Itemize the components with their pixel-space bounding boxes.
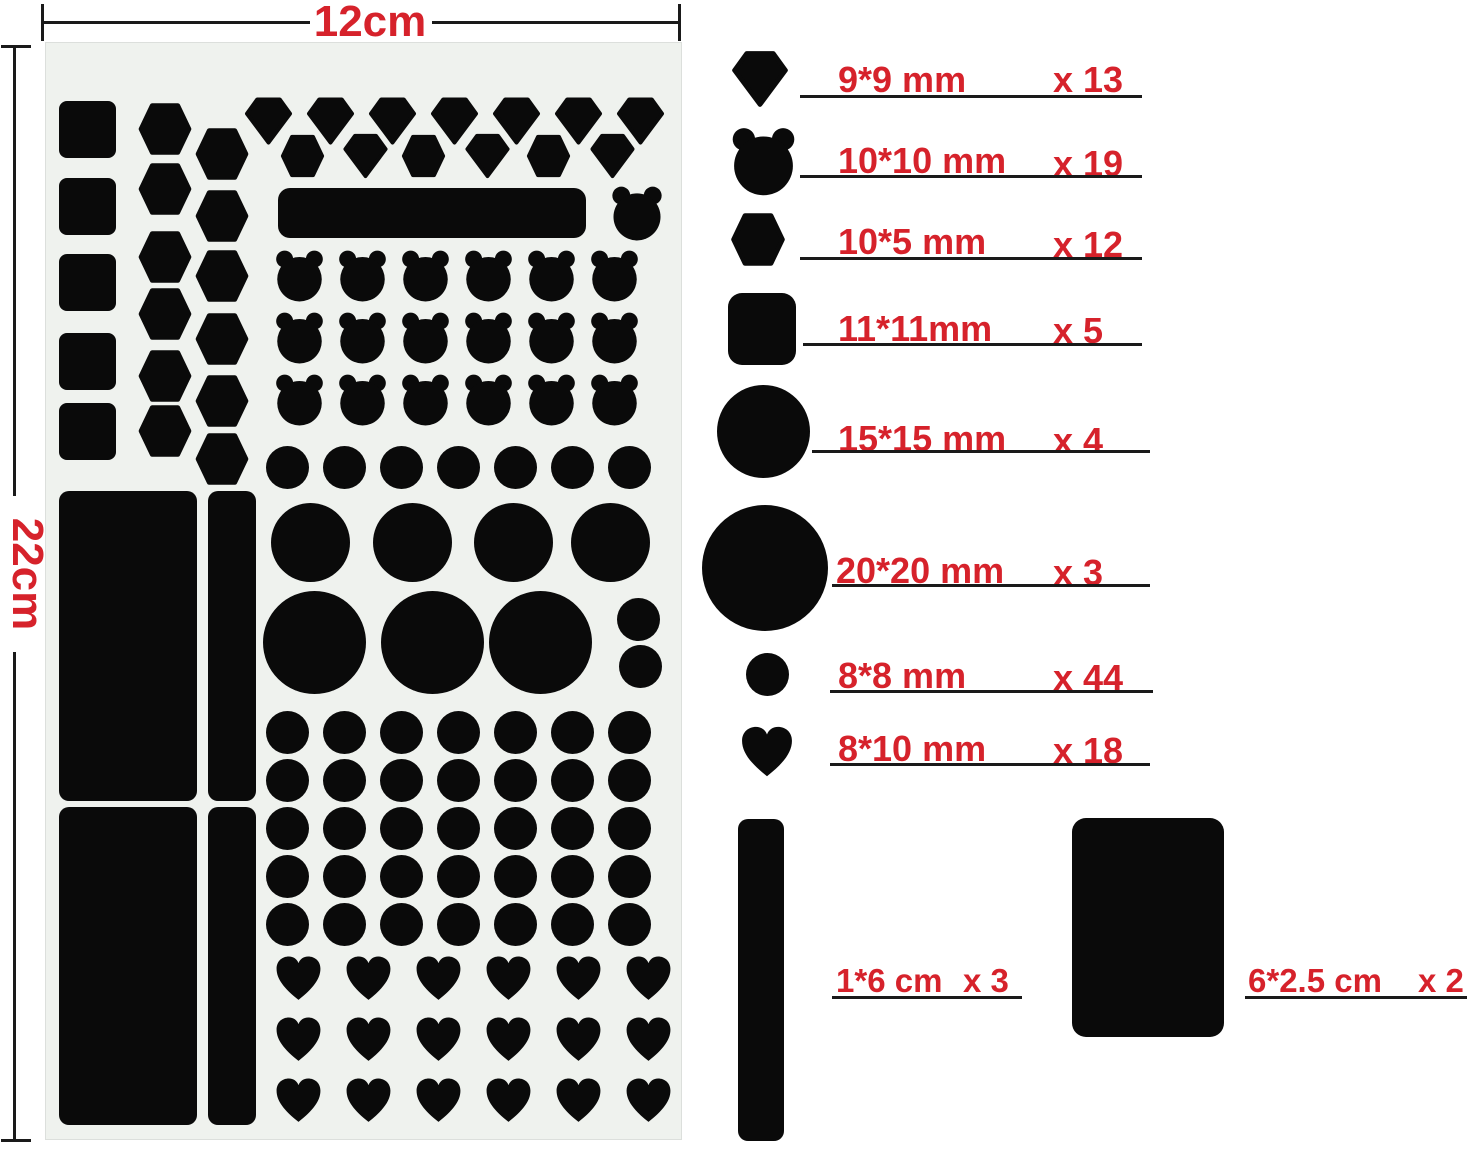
sheet-hexagon-shape <box>136 229 194 285</box>
sheet-hexagon-shape <box>193 431 251 487</box>
sheet-circle-shape <box>323 903 366 946</box>
sheet-circle-shape <box>608 807 651 850</box>
sheet-rectangle-shape <box>59 491 197 801</box>
left-dimension-tick-bottom <box>1 1139 31 1142</box>
sheet-circle-shape <box>617 598 660 641</box>
sheet-circle-shape <box>551 903 594 946</box>
legend-size-label: 11*11mm <box>838 311 992 347</box>
sheet-hexagon-shape <box>136 403 194 459</box>
legend-size-label: 10*5 mm <box>838 224 986 260</box>
sheet-circle-shape <box>437 759 480 802</box>
sheet-circle-shape <box>494 903 537 946</box>
sheet-heart-shape <box>621 1076 676 1127</box>
legend-size-label: 8*10 mm <box>838 731 986 767</box>
sheet-heart-shape <box>551 1015 606 1066</box>
sheet-heart-shape <box>621 1015 676 1066</box>
sheet-rectangle-shape <box>208 807 256 1125</box>
patch-6x25-shape <box>1072 818 1224 1037</box>
sheet-circle-shape <box>437 711 480 754</box>
strip-count-label: x 3 <box>963 964 1009 997</box>
sheet-heart-shape <box>621 954 676 1005</box>
sheet-circle-shape <box>380 903 423 946</box>
patch-count-label: x 2 <box>1418 964 1464 997</box>
sheet-circle-shape <box>323 807 366 850</box>
sheet-circle-shape <box>494 446 537 489</box>
sheet-hexagon-shape <box>399 133 448 179</box>
sheet-square-shape <box>59 403 116 460</box>
legend-count-label: x 13 <box>1053 62 1123 98</box>
sheet-bear-shape <box>462 311 515 364</box>
sheet-circle-shape <box>266 711 309 754</box>
legend-underline <box>800 95 1142 98</box>
legend-underline <box>812 450 1150 453</box>
sheet-circle-shape <box>323 855 366 898</box>
strip-size-label: 1*6 cm <box>836 964 942 997</box>
height-dimension-label: 22cm <box>3 496 51 652</box>
legend-underline <box>800 257 1142 260</box>
patch-size-label: 6*2.5 cm <box>1248 964 1382 997</box>
sheet-square-shape <box>59 333 116 390</box>
sheet-hexagon-shape <box>136 161 194 217</box>
sheet-hexagon-shape <box>193 188 251 244</box>
sheet-hexagon-shape <box>193 373 251 429</box>
sheet-circle-shape <box>323 446 366 489</box>
sheet-circle-shape <box>266 855 309 898</box>
legend-size-label: 10*10 mm <box>838 143 1006 179</box>
sheet-circle-shape <box>380 711 423 754</box>
sheet-square-shape <box>59 254 116 311</box>
patch-underline <box>1245 996 1467 999</box>
sheet-circle-shape <box>608 855 651 898</box>
legend-underline <box>830 763 1150 766</box>
sheet-circle-shape <box>494 807 537 850</box>
legend-underline <box>800 175 1142 178</box>
top-dimension-line-left <box>42 21 310 24</box>
sheet-rectangle-shape <box>278 188 586 238</box>
sheet-circle-shape <box>494 759 537 802</box>
sheet-heart-shape <box>271 1015 326 1066</box>
sheet-heart-shape <box>411 1076 466 1127</box>
sheet-hexagon-shape <box>136 101 194 157</box>
sheet-bear-shape <box>336 249 389 302</box>
sheet-circle-shape <box>437 807 480 850</box>
strip-underline <box>832 996 1022 999</box>
sheet-circle-shape <box>551 807 594 850</box>
sheet-bear-shape <box>336 373 389 426</box>
sheet-circle-shape <box>373 503 452 582</box>
sheet-diamond-shape <box>588 133 637 179</box>
sheet-heart-shape <box>481 1076 536 1127</box>
top-dimension-tick-right <box>678 4 681 41</box>
legend-size-label: 9*9 mm <box>838 62 966 98</box>
sheet-hexagon-shape <box>193 248 251 304</box>
sheet-diamond-shape <box>341 133 390 179</box>
sheet-circle-shape <box>551 855 594 898</box>
sheet-circle-shape <box>608 903 651 946</box>
sheet-bear-shape <box>273 311 326 364</box>
sheet-diamond-shape <box>463 133 512 179</box>
sheet-bear-shape <box>588 311 641 364</box>
sheet-rectangle-shape <box>59 807 197 1125</box>
sheet-circle-shape <box>380 855 423 898</box>
sheet-hexagon-shape <box>136 348 194 404</box>
sheet-hexagon-shape <box>193 126 251 182</box>
top-dimension-line-right <box>432 21 680 24</box>
legend-count-label: x 4 <box>1053 423 1103 459</box>
sheet-square-shape <box>59 101 116 158</box>
sheet-bear-shape <box>462 249 515 302</box>
sheet-circle-shape <box>494 711 537 754</box>
sheet-circle-shape <box>437 903 480 946</box>
legend-underline <box>830 690 1153 693</box>
sheet-circle-shape <box>551 711 594 754</box>
square-icon <box>728 293 796 365</box>
sheet-circle-shape <box>266 807 309 850</box>
sheet-circle-shape <box>437 855 480 898</box>
sheet-circle-shape <box>263 591 366 694</box>
sheet-hexagon-shape <box>136 286 194 342</box>
left-dimension-line-bottom <box>13 645 16 1141</box>
sheet-hexagon-shape <box>524 133 573 179</box>
sheet-circle-shape <box>494 855 537 898</box>
sheet-rectangle-shape <box>208 491 256 801</box>
sheet-bear-shape <box>399 311 452 364</box>
sheet-bear-shape <box>525 373 578 426</box>
hexagon-icon <box>728 211 788 268</box>
sheet-bear-shape <box>336 311 389 364</box>
sheet-square-shape <box>59 178 116 235</box>
product-dimension-diagram: 12cm 22cm 9*9 mm x 13 10*10 mm x 19 <box>0 0 1468 1151</box>
sheet-heart-shape <box>341 954 396 1005</box>
legend-size-label: 8*8 mm <box>838 658 966 694</box>
sheet-bear-shape <box>273 373 326 426</box>
sheet-circle-shape <box>551 446 594 489</box>
sheet-circle-shape <box>608 711 651 754</box>
sheet-circle-shape <box>380 807 423 850</box>
sheet-circle-shape <box>551 759 594 802</box>
small-circle-icon <box>746 653 789 696</box>
sheet-bear-shape <box>399 373 452 426</box>
left-dimension-tick-top <box>1 45 31 48</box>
left-dimension-line-top <box>13 47 16 503</box>
sheet-circle-shape <box>437 446 480 489</box>
sheet-hexagon-shape <box>278 133 327 179</box>
sheet-circle-shape <box>323 711 366 754</box>
sheet-bear-shape <box>588 249 641 302</box>
sheet-heart-shape <box>271 954 326 1005</box>
sheet-circle-shape <box>608 759 651 802</box>
sheet-circle-shape <box>266 903 309 946</box>
sheet-circle-shape <box>380 446 423 489</box>
sheet-circle-shape <box>619 645 662 688</box>
sheet-bear-shape <box>273 249 326 302</box>
heart-icon <box>735 724 799 782</box>
diamond-icon <box>731 50 789 108</box>
sheet-bear-shape <box>462 373 515 426</box>
sheet-circle-shape <box>266 446 309 489</box>
strip-1x6-shape <box>738 819 784 1141</box>
sheet-bear-shape <box>399 249 452 302</box>
legend-underline <box>803 343 1142 346</box>
sheet-circle-shape <box>489 591 592 694</box>
sheet-circle-shape <box>266 759 309 802</box>
width-dimension-label: 12cm <box>305 0 435 44</box>
sheet-heart-shape <box>551 954 606 1005</box>
large-circle-icon <box>702 505 828 631</box>
sheet-heart-shape <box>271 1076 326 1127</box>
sheet-bear-shape <box>588 373 641 426</box>
bear-icon <box>727 126 800 196</box>
sheet-heart-shape <box>411 1015 466 1066</box>
sheet-circle-shape <box>271 503 350 582</box>
sheet-bear-shape <box>525 249 578 302</box>
sheet-heart-shape <box>481 1015 536 1066</box>
sheet-circle-shape <box>323 759 366 802</box>
sheet-heart-shape <box>341 1076 396 1127</box>
sheet-bear-shape <box>525 311 578 364</box>
sheet-circle-shape <box>474 503 553 582</box>
sticker-sheet <box>45 42 682 1140</box>
sheet-heart-shape <box>481 954 536 1005</box>
top-dimension-tick-left <box>41 4 44 41</box>
sheet-heart-shape <box>341 1015 396 1066</box>
circle-icon <box>717 385 810 478</box>
sheet-heart-shape <box>551 1076 606 1127</box>
sheet-circle-shape <box>381 591 484 694</box>
sheet-circle-shape <box>608 446 651 489</box>
legend-underline <box>832 584 1150 587</box>
sheet-heart-shape <box>411 954 466 1005</box>
sheet-bear-shape <box>609 185 665 241</box>
sheet-hexagon-shape <box>193 311 251 367</box>
sheet-circle-shape <box>571 503 650 582</box>
sheet-circle-shape <box>380 759 423 802</box>
